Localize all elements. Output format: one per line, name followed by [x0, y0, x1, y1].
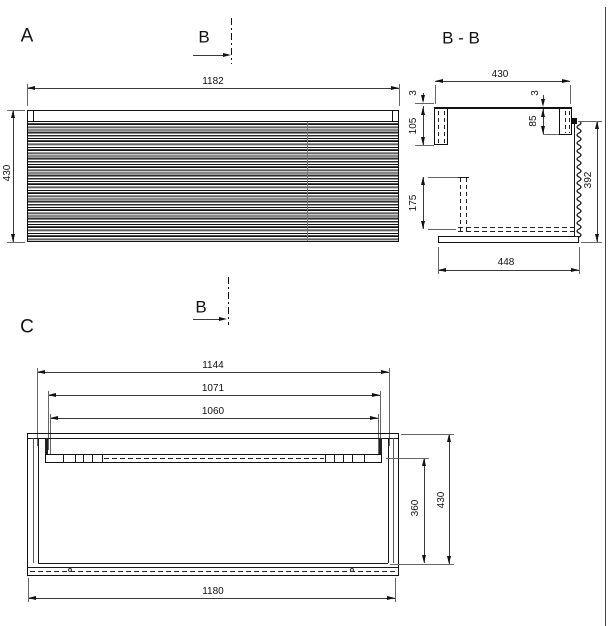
- extension-line: [27, 84, 28, 106]
- cut-plane-line: [231, 18, 232, 64]
- extension-line: [7, 110, 25, 111]
- extension-line: [399, 84, 400, 106]
- slide-rail-hidden-line: [466, 178, 467, 233]
- dim-arrow: [438, 268, 446, 272]
- dim-arrow: [50, 416, 58, 420]
- dim-body-width-text: 1180: [202, 587, 224, 597]
- cut-marker-arrow: [219, 317, 227, 321]
- cut-plane-line: [228, 277, 229, 325]
- side-wall-inner-line: [38, 438, 39, 563]
- dim-arrow: [447, 556, 451, 564]
- rail-tick: [334, 454, 335, 463]
- dim-arrow: [421, 177, 425, 185]
- cut-marker-arrow: [223, 53, 231, 57]
- front-view-outline: [27, 110, 399, 242]
- drawer-gap-line: [307, 122, 308, 241]
- interior-bottom-line: [38, 563, 388, 564]
- extension-line: [28, 578, 29, 602]
- dim-c-inner-depth-text: 360: [411, 500, 421, 517]
- handle-rail-end-right: [392, 110, 399, 122]
- side-wall-line: [393, 438, 394, 563]
- dim-gap-right-text: 3: [531, 90, 541, 96]
- rail-tick: [102, 454, 103, 463]
- dim-arrow: [11, 110, 15, 118]
- dim-arrow: [372, 393, 380, 397]
- dim-line: [424, 458, 425, 563]
- dim-arrow: [595, 234, 599, 242]
- dim-front-rail-text: 85: [529, 115, 539, 126]
- dim-arrow: [422, 555, 426, 563]
- dim-arrow: [422, 458, 426, 466]
- side-wall-inner-line: [388, 438, 389, 563]
- technical-drawing: A B 1182 430 B - B 430 3 105 3 85: [0, 0, 610, 626]
- rail-hidden-line: [104, 458, 324, 459]
- dim-front-width-text: 1182: [202, 77, 224, 87]
- dim-arrow: [541, 99, 545, 107]
- front-strip-line: [28, 567, 398, 568]
- dim-c-outer-depth-text: 430: [437, 492, 447, 509]
- extension-line: [390, 564, 454, 565]
- dim-arrow: [435, 79, 443, 83]
- dim-arrow: [541, 109, 545, 117]
- dim-outer-width-text: 1144: [202, 361, 224, 371]
- extension-line: [428, 229, 456, 230]
- extension-line: [543, 134, 560, 135]
- slide-rail-cap: [457, 177, 469, 178]
- extension-line: [7, 242, 25, 243]
- dim-line: [28, 598, 395, 599]
- extension-line: [395, 578, 396, 602]
- cut-marker-line: [193, 319, 222, 320]
- dim-arrow: [447, 434, 451, 442]
- dim-arrow: [370, 416, 378, 420]
- dim-line: [27, 88, 399, 89]
- hanging-bracket: [379, 438, 382, 454]
- dim-rail-outer-text: 1071: [202, 384, 224, 394]
- rail-tick: [352, 454, 353, 463]
- extension-line: [438, 247, 439, 274]
- dim-section-top-width-text: 430: [492, 70, 509, 80]
- back-wall-inner-line: [28, 438, 398, 439]
- rail-tick: [63, 454, 64, 463]
- top-panel-line: [434, 107, 572, 109]
- dim-arrow: [387, 596, 395, 600]
- cut-marker-b-bottom-label: B: [195, 298, 206, 317]
- dim-arrow: [37, 370, 45, 374]
- view-c-label: C: [20, 318, 34, 337]
- fitting-detail: [350, 568, 354, 572]
- dim-arrow: [27, 86, 35, 90]
- handle-rail-end-left: [27, 110, 34, 122]
- extension-line: [435, 85, 436, 104]
- fitting-detail: [68, 568, 72, 572]
- dim-arrow: [595, 121, 599, 129]
- back-rail-section: [434, 108, 448, 145]
- dim-back-rail-text: 105: [409, 118, 419, 135]
- dim-line: [48, 395, 380, 396]
- bottom-panel-section: [438, 236, 579, 243]
- rail-tick: [83, 454, 84, 463]
- dim-line: [597, 121, 598, 242]
- extension-line: [415, 145, 434, 146]
- hidden-line: [458, 231, 576, 232]
- front-strip-hidden-line: [30, 571, 396, 572]
- extension-line: [570, 85, 571, 104]
- section-title: B - B: [442, 29, 480, 48]
- dim-line: [449, 434, 450, 564]
- dim-line: [13, 110, 14, 242]
- dim-arrow: [391, 86, 399, 90]
- dim-gap-left-text: 3: [409, 90, 419, 96]
- dim-bottom-depth-text: 448: [498, 258, 515, 268]
- dim-front-height-text: 430: [3, 165, 13, 182]
- hidden-line: [444, 111, 445, 143]
- dim-arrow: [11, 234, 15, 242]
- hidden-line: [569, 111, 570, 133]
- hidden-line: [438, 111, 439, 143]
- dim-arrow: [421, 95, 425, 103]
- dim-arrow: [48, 393, 56, 397]
- rail-tick: [325, 454, 326, 463]
- extension-line: [386, 458, 429, 459]
- dim-line: [438, 270, 579, 271]
- dim-arrow: [421, 137, 425, 145]
- page-border: [605, 7, 606, 626]
- rail-tick: [364, 454, 365, 463]
- hanging-bracket: [45, 438, 48, 454]
- side-wall-line: [33, 438, 34, 563]
- extension-line: [578, 121, 602, 122]
- dim-arrow: [381, 370, 389, 374]
- view-a-label: A: [21, 27, 34, 46]
- dim-arrow: [562, 79, 570, 83]
- dim-arrow: [541, 126, 545, 134]
- extension-line: [581, 242, 602, 243]
- dim-rail-inner-text: 1060: [202, 407, 224, 417]
- rail-tick: [343, 454, 344, 463]
- extension-line: [428, 177, 458, 178]
- hidden-line: [565, 111, 566, 133]
- dim-line: [37, 372, 389, 373]
- rail-tick: [75, 454, 76, 463]
- dim-inner-depth-text: 392: [584, 172, 594, 189]
- dim-arrow: [571, 268, 579, 272]
- dim-arrow: [421, 221, 425, 229]
- extension-line: [579, 247, 580, 274]
- dim-arrow: [28, 596, 36, 600]
- dim-line: [50, 418, 378, 419]
- dim-slide-text: 175: [409, 195, 419, 212]
- extension-line: [415, 103, 434, 104]
- extension-line: [401, 434, 454, 435]
- rail-tick: [92, 454, 93, 463]
- cut-marker-line: [193, 55, 225, 56]
- dim-arrow: [421, 107, 425, 115]
- hidden-line: [458, 227, 576, 228]
- cut-marker-b-top-label: B: [198, 28, 209, 47]
- slide-rail-hidden-line: [460, 178, 461, 233]
- dim-line: [435, 81, 570, 82]
